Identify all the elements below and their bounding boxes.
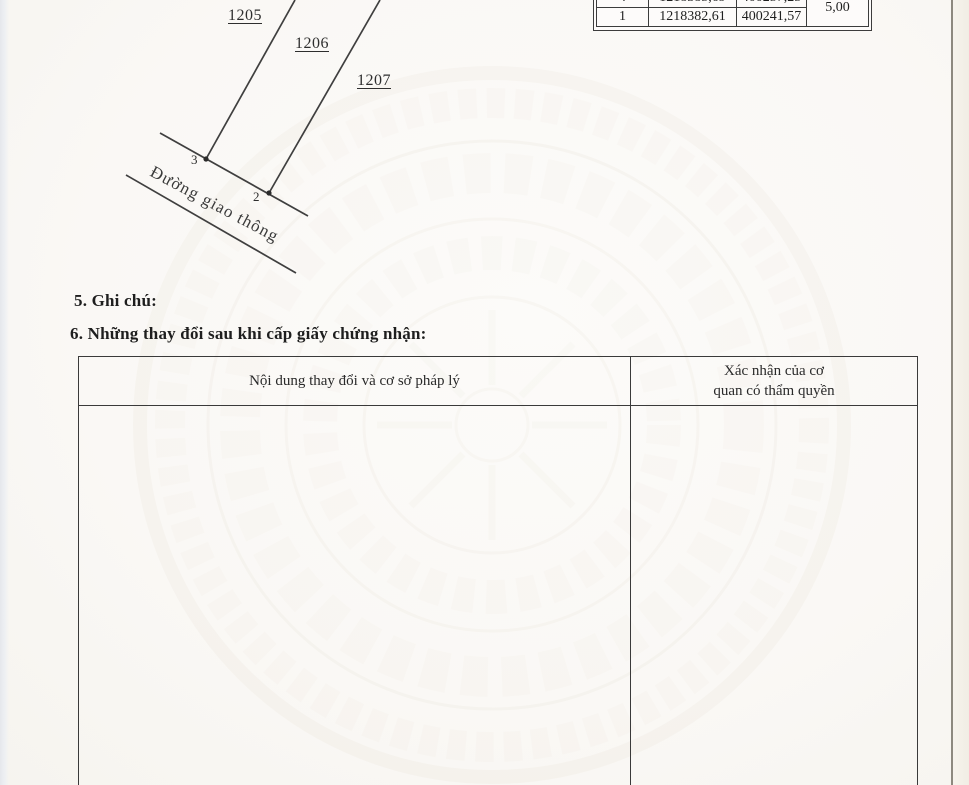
- changes-table-body: [79, 406, 917, 785]
- section-6-heading: 6. Những thay đổi sau khi cấp giấy chứng…: [70, 324, 427, 344]
- coordinate-row-clipped: 4 1218385,69 400257,25 5,00: [597, 0, 869, 8]
- parcel-label-1206: 1206: [295, 35, 329, 53]
- changes-content-cell: [79, 406, 631, 785]
- changes-col1-header: Nội dung thay đổi và cơ sở pháp lý: [79, 357, 631, 405]
- x-coordinate-cell: 1218385,69: [649, 0, 737, 8]
- parcel-label-1207: 1207: [357, 72, 391, 90]
- edge-length-cell: 5,00: [807, 0, 869, 27]
- vertex-3-dot: [203, 156, 208, 161]
- coordinate-table: 4 1218385,69 400257,25 5,00 1 1218382,61…: [593, 0, 872, 31]
- parcel-label-1205: 1205: [228, 7, 262, 25]
- changes-col2-header-line1: Xác nhận của cơ: [724, 361, 824, 381]
- changes-table: Nội dung thay đổi và cơ sở pháp lý Xác n…: [78, 356, 918, 785]
- point-number-cell: 1: [597, 8, 649, 27]
- y-coordinate-cell: 400241,57: [737, 8, 807, 27]
- changes-col2-header-line2: quan có thẩm quyền: [713, 381, 834, 401]
- y-coordinate-cell: 400257,25: [737, 0, 807, 8]
- parcel-boundary-line-2: [269, 0, 380, 193]
- vertex-label-3: 3: [191, 152, 198, 168]
- changes-col2-header: Xác nhận của cơ quan có thẩm quyền: [631, 357, 917, 405]
- section-5-heading: 5. Ghi chú:: [74, 291, 157, 311]
- point-number-cell: 4: [597, 0, 649, 8]
- changes-table-header: Nội dung thay đổi và cơ sở pháp lý Xác n…: [79, 357, 917, 406]
- scan-left-edge: [0, 0, 9, 785]
- x-coordinate-cell: 1218382,61: [649, 8, 737, 27]
- vertex-label-2: 2: [253, 189, 260, 205]
- changes-confirmation-cell: [631, 406, 917, 785]
- vertex-2-dot: [266, 190, 271, 195]
- scanned-document-page: 1205 1206 1207 3 2 Đường giao thông 4 12…: [0, 0, 969, 785]
- scan-right-edge-strip: [953, 0, 969, 785]
